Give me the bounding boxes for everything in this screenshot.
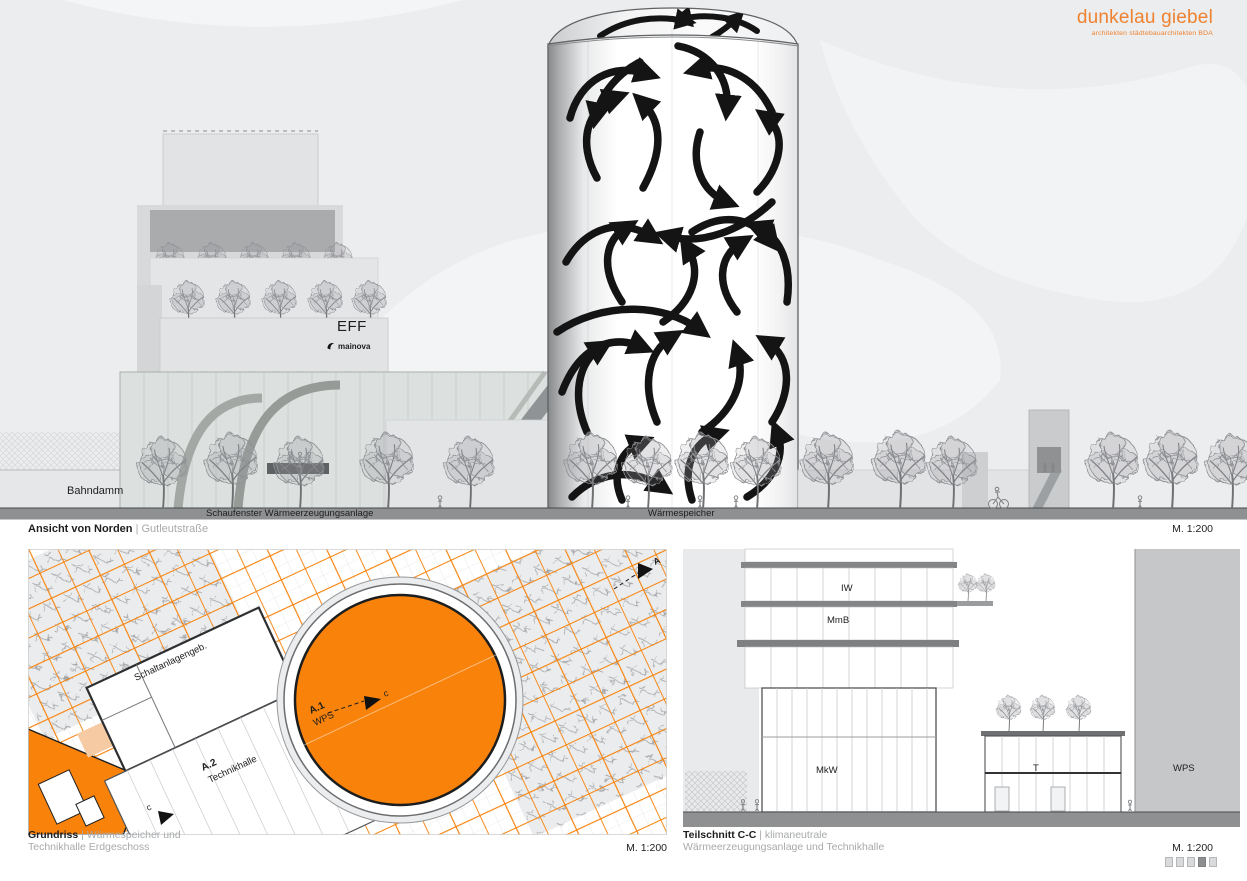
office-logo: dunkelau giebel architekten städtebauarc… bbox=[1077, 7, 1213, 37]
section-label-iw: IW bbox=[841, 584, 853, 595]
plan-title-light: | Wärmespeicher und bbox=[81, 829, 181, 841]
elevation-title-light: | Gutleutstraße bbox=[136, 523, 209, 535]
section-label-t: T bbox=[1033, 764, 1039, 775]
section-label-mmb: MmB bbox=[827, 616, 849, 627]
street-band bbox=[0, 508, 1247, 520]
page-square bbox=[1176, 857, 1184, 867]
label-eff: EFF bbox=[337, 318, 367, 335]
elevation-title-bold: Ansicht von Norden bbox=[28, 523, 133, 535]
page-square bbox=[1198, 857, 1206, 867]
label-schaufenster: Schaufenster Wärmeerzeugungsanlage bbox=[206, 509, 373, 520]
label-waermespeicher: Wärmespeicher bbox=[648, 509, 715, 520]
office-logo-title: dunkelau giebel bbox=[1077, 7, 1213, 29]
plan-storage-circle bbox=[277, 577, 523, 823]
section-mkw-hall bbox=[762, 688, 936, 812]
elevation-view bbox=[0, 0, 1247, 520]
waermespeicher-tower bbox=[548, 8, 798, 509]
presentation-board: Schaltanlagengeb. A.1 WPS A.2 Technikhal… bbox=[0, 0, 1247, 881]
page-square bbox=[1165, 857, 1173, 867]
plan-scale: M. 1:200 bbox=[28, 842, 667, 854]
page-square bbox=[1209, 857, 1217, 867]
page-square bbox=[1187, 857, 1195, 867]
section-title-bold: Teilschnitt C-C bbox=[683, 829, 756, 841]
elevation-title: Ansicht von Norden | Gutleutstraße bbox=[28, 523, 208, 536]
plan-title-bold: Grundriss bbox=[28, 829, 78, 841]
page-indicator bbox=[1165, 857, 1217, 867]
mainova-swoosh-icon bbox=[326, 341, 336, 351]
elevation-scale: M. 1:200 bbox=[1172, 523, 1213, 535]
mainova-logo: mainova bbox=[326, 341, 370, 351]
section-title-light2: Wärmeerzeugungsanlage und Technikhalle bbox=[683, 841, 884, 853]
board-drawing: Schaltanlagengeb. A.1 WPS A.2 Technikhal… bbox=[0, 0, 1247, 881]
mainova-wordmark: mainova bbox=[338, 342, 370, 351]
office-logo-subtitle: architekten städtebauarchitekten BDA bbox=[1077, 30, 1213, 37]
label-bahndamm: Bahndamm bbox=[67, 485, 123, 498]
section-label-wps: WPS bbox=[1173, 764, 1195, 775]
section-title-light: | klimaneutrale bbox=[759, 829, 827, 841]
section-ground bbox=[683, 812, 1240, 827]
section-title: Teilschnitt C-C | klimaneutrale Wärmeerz… bbox=[683, 829, 884, 853]
lift-tower bbox=[1029, 410, 1069, 509]
section-scale: M. 1:200 bbox=[1172, 842, 1213, 854]
section-label-mkw: MkW bbox=[816, 766, 838, 777]
glass-hall bbox=[120, 372, 568, 509]
